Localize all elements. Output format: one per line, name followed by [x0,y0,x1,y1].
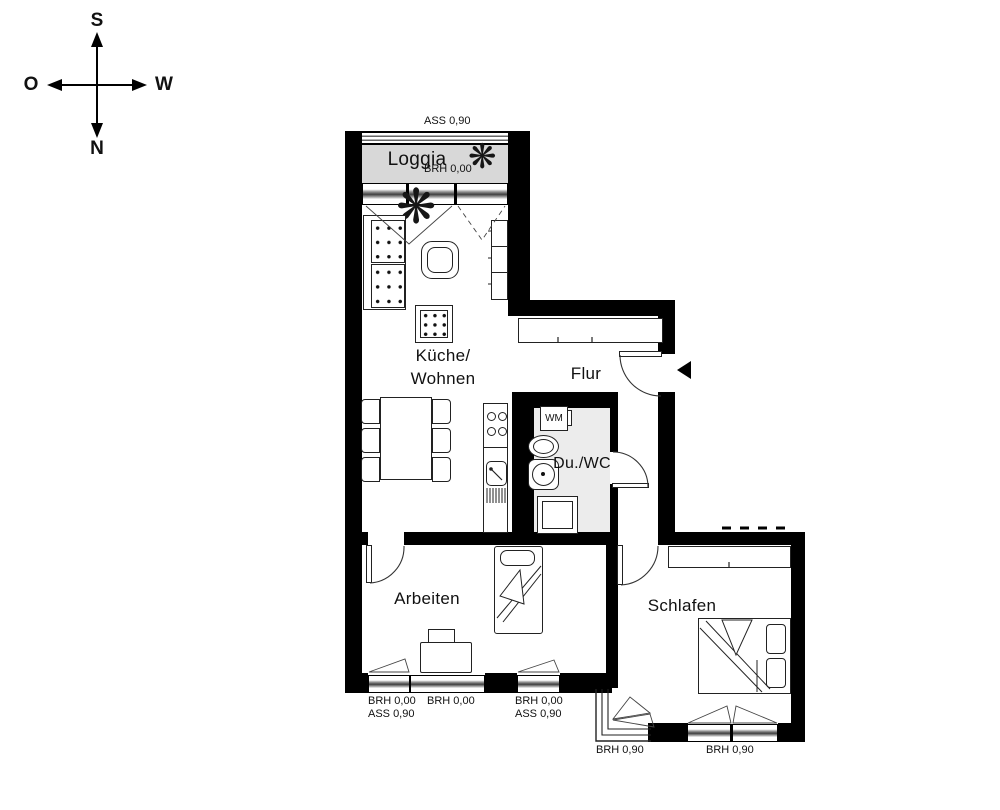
room-label-hallway: Flur [571,364,601,384]
bedroom-south-window-note: BRH 0,90 [706,744,754,757]
window-opening-triangle [613,697,650,719]
window-opening-triangle [688,706,731,723]
window-opening-triangle [369,659,409,672]
bedroom-door-swing [621,546,658,585]
blanket-fold-flap [722,620,752,655]
room-label-office: Arbeiten [394,589,460,609]
office-door-swing [370,546,404,583]
counter-hatch [487,488,505,503]
room-label-kitchen-line2: Wohnen [411,369,476,389]
note-line: BRH 0,00 [368,695,416,708]
window-opening-triangle [518,660,559,672]
corner-window-frame [602,689,651,735]
note-line: ASS 0,90 [368,708,416,721]
window-tilt-lines [458,206,505,240]
window-swing-lines [366,206,452,244]
entrance-arrow-icon [677,361,691,379]
floor-plan: S N O W ❋ ❋ [0,0,1000,810]
room-label-bathroom: Du./WC [553,455,611,473]
tap-line [491,469,502,480]
note-line: ASS 0,90 [515,708,563,721]
office-window-center-note: BRH 0,00 [427,695,475,708]
room-label-bedroom: Schlafen [648,596,717,616]
note-line: BRH 0,00 [515,695,563,708]
room-label-kitchen-line1: Küche/ [416,346,471,366]
bathroom-door-swing [613,452,648,487]
note-line: BRH 0,00 [427,695,475,708]
office-window-right-note: BRH 0,00 ASS 0,90 [515,695,563,720]
office-window-left-note: BRH 0,00 ASS 0,90 [368,695,416,720]
window-opening-triangle [733,706,777,723]
cabinet-ticks [488,231,491,284]
bedroom-corner-window-note: BRH 0,90 [596,744,644,757]
entrance-door-swing [620,355,661,396]
blanket-fold-flap [500,570,524,604]
loggia-parapet-note: ASS 0,90 [424,115,470,128]
plan-linework [0,0,1000,810]
loggia-sill-note: BRH 0,00 [424,163,472,176]
tap-knob [489,467,493,471]
